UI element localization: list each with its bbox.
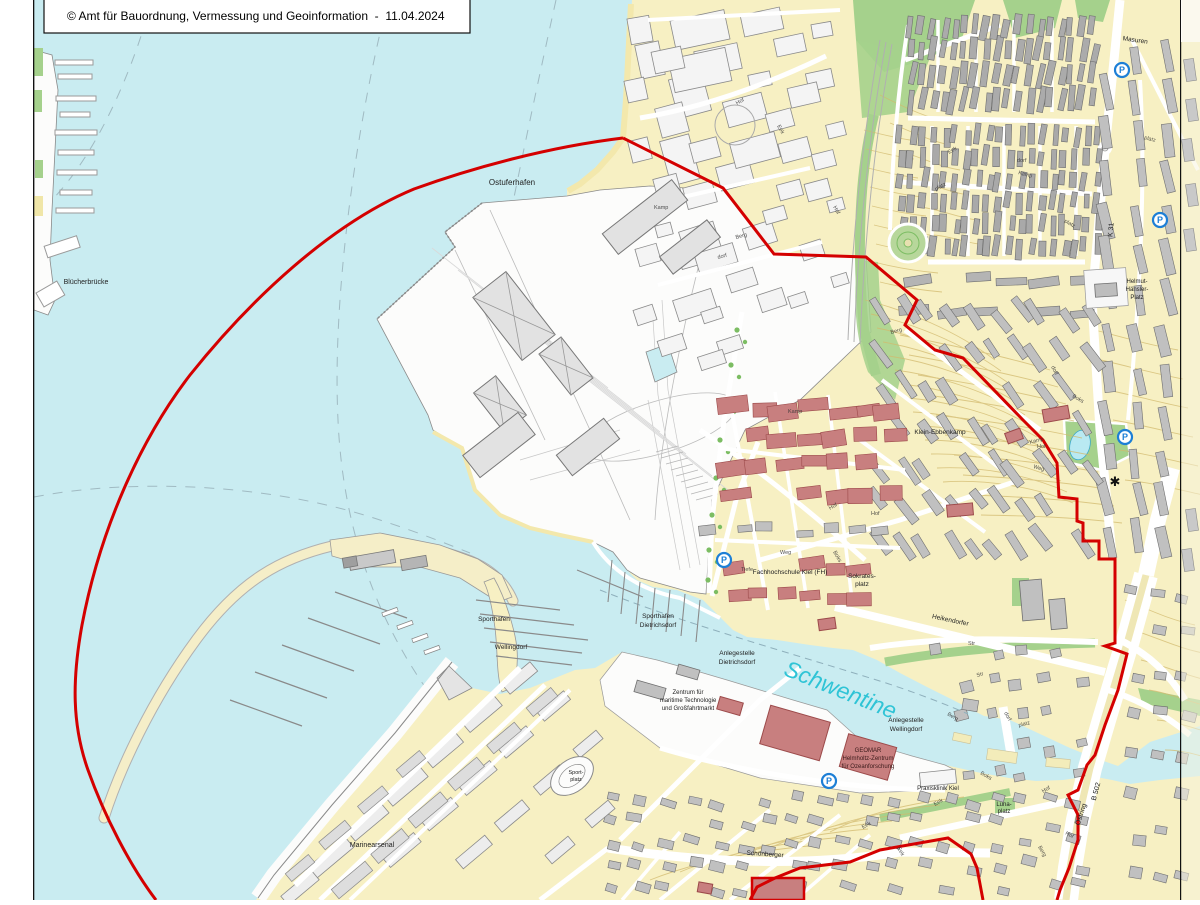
svg-text:Luna-: Luna- bbox=[996, 802, 1011, 808]
svg-text:Klein-Ebbenkamp: Klein-Ebbenkamp bbox=[914, 429, 966, 436]
svg-text:K 31: K 31 bbox=[1107, 222, 1115, 237]
svg-text:Praxisklinik Kiel: Praxisklinik Kiel bbox=[917, 786, 959, 792]
svg-text:und Großfahrtmarkt: und Großfahrtmarkt bbox=[662, 706, 715, 712]
svg-text:Sport-: Sport- bbox=[569, 770, 584, 776]
svg-text:Hof: Hof bbox=[1037, 444, 1046, 450]
svg-text:Anlegestelle: Anlegestelle bbox=[719, 650, 755, 657]
svg-text:Helmut-: Helmut- bbox=[1126, 279, 1147, 285]
svg-text:für Ozeanforschung: für Ozeanforschung bbox=[842, 764, 895, 770]
svg-text:Helmholtz-Zentrum: Helmholtz-Zentrum bbox=[842, 756, 893, 762]
svg-text:GEOMAR: GEOMAR bbox=[855, 748, 882, 754]
svg-text:Weg: Weg bbox=[780, 550, 791, 556]
svg-text:P: P bbox=[1122, 432, 1128, 442]
svg-text:Sokrates-: Sokrates- bbox=[848, 573, 876, 580]
svg-text:Dietrichsdorf: Dietrichsdorf bbox=[719, 659, 756, 666]
svg-text:P: P bbox=[826, 776, 832, 786]
svg-text:dorf: dorf bbox=[1017, 158, 1027, 164]
svg-text:platz: platz bbox=[998, 809, 1011, 815]
svg-text:maritime Technologie: maritime Technologie bbox=[660, 698, 717, 704]
svg-text:Kamp: Kamp bbox=[654, 205, 668, 211]
svg-text:Marinearsenal: Marinearsenal bbox=[350, 842, 395, 849]
svg-text:Fachhochschule Kiel (FH): Fachhochschule Kiel (FH) bbox=[753, 569, 828, 576]
svg-text:Tiefe: Tiefe bbox=[741, 567, 753, 573]
svg-text:✱: ✱ bbox=[1110, 474, 1121, 489]
svg-text:Sporthafen: Sporthafen bbox=[478, 616, 510, 623]
svg-text:P: P bbox=[721, 555, 727, 565]
svg-text:platz: platz bbox=[855, 581, 869, 588]
svg-text:Sporthafen: Sporthafen bbox=[642, 613, 674, 620]
svg-text:Ostuferhafen: Ostuferhafen bbox=[489, 178, 535, 187]
svg-text:Dietrichsdorf: Dietrichsdorf bbox=[640, 622, 677, 629]
svg-text:Str: Str bbox=[968, 641, 975, 647]
svg-text:Kamp: Kamp bbox=[788, 409, 802, 415]
svg-text:Anlegestelle: Anlegestelle bbox=[888, 717, 924, 724]
svg-text:Zentrum für: Zentrum für bbox=[672, 690, 703, 696]
svg-text:Platz: Platz bbox=[1130, 295, 1143, 301]
svg-text:© Amt für Bauordnung, Vermessu: © Amt für Bauordnung, Vermessung und Geo… bbox=[67, 9, 445, 23]
svg-text:Wellingdorf: Wellingdorf bbox=[890, 726, 923, 733]
svg-text:Hof: Hof bbox=[871, 511, 880, 517]
svg-text:P: P bbox=[1157, 215, 1163, 225]
svg-text:P: P bbox=[1119, 65, 1125, 75]
svg-text:Hänsler-: Hänsler- bbox=[1126, 287, 1149, 293]
svg-text:Wellingdorf: Wellingdorf bbox=[495, 644, 528, 651]
svg-text:platz: platz bbox=[570, 777, 582, 783]
svg-text:Blücherbrücke: Blücherbrücke bbox=[64, 279, 109, 286]
